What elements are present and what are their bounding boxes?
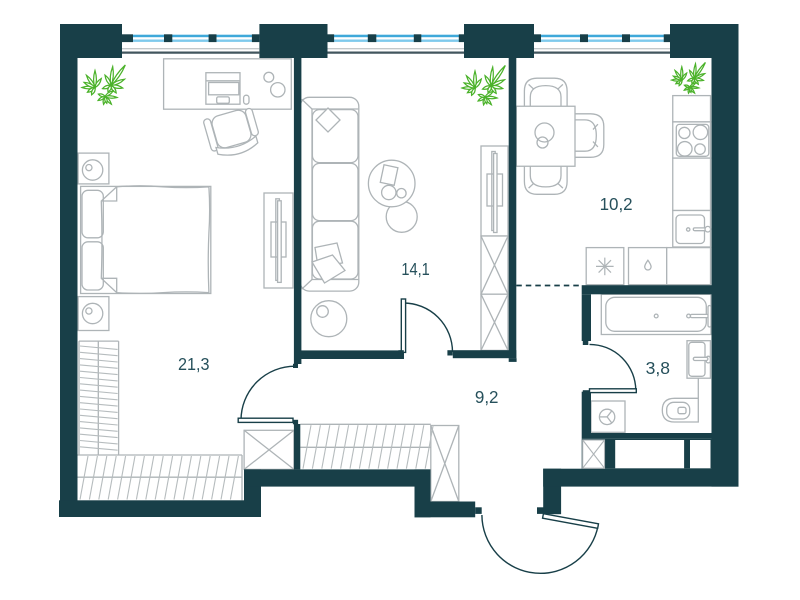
svg-text:9,2: 9,2: [475, 387, 499, 407]
svg-text:10,2: 10,2: [600, 194, 633, 214]
svg-text:3,8: 3,8: [646, 358, 670, 378]
svg-text:14,1: 14,1: [401, 259, 429, 279]
svg-text:21,3: 21,3: [178, 354, 210, 374]
